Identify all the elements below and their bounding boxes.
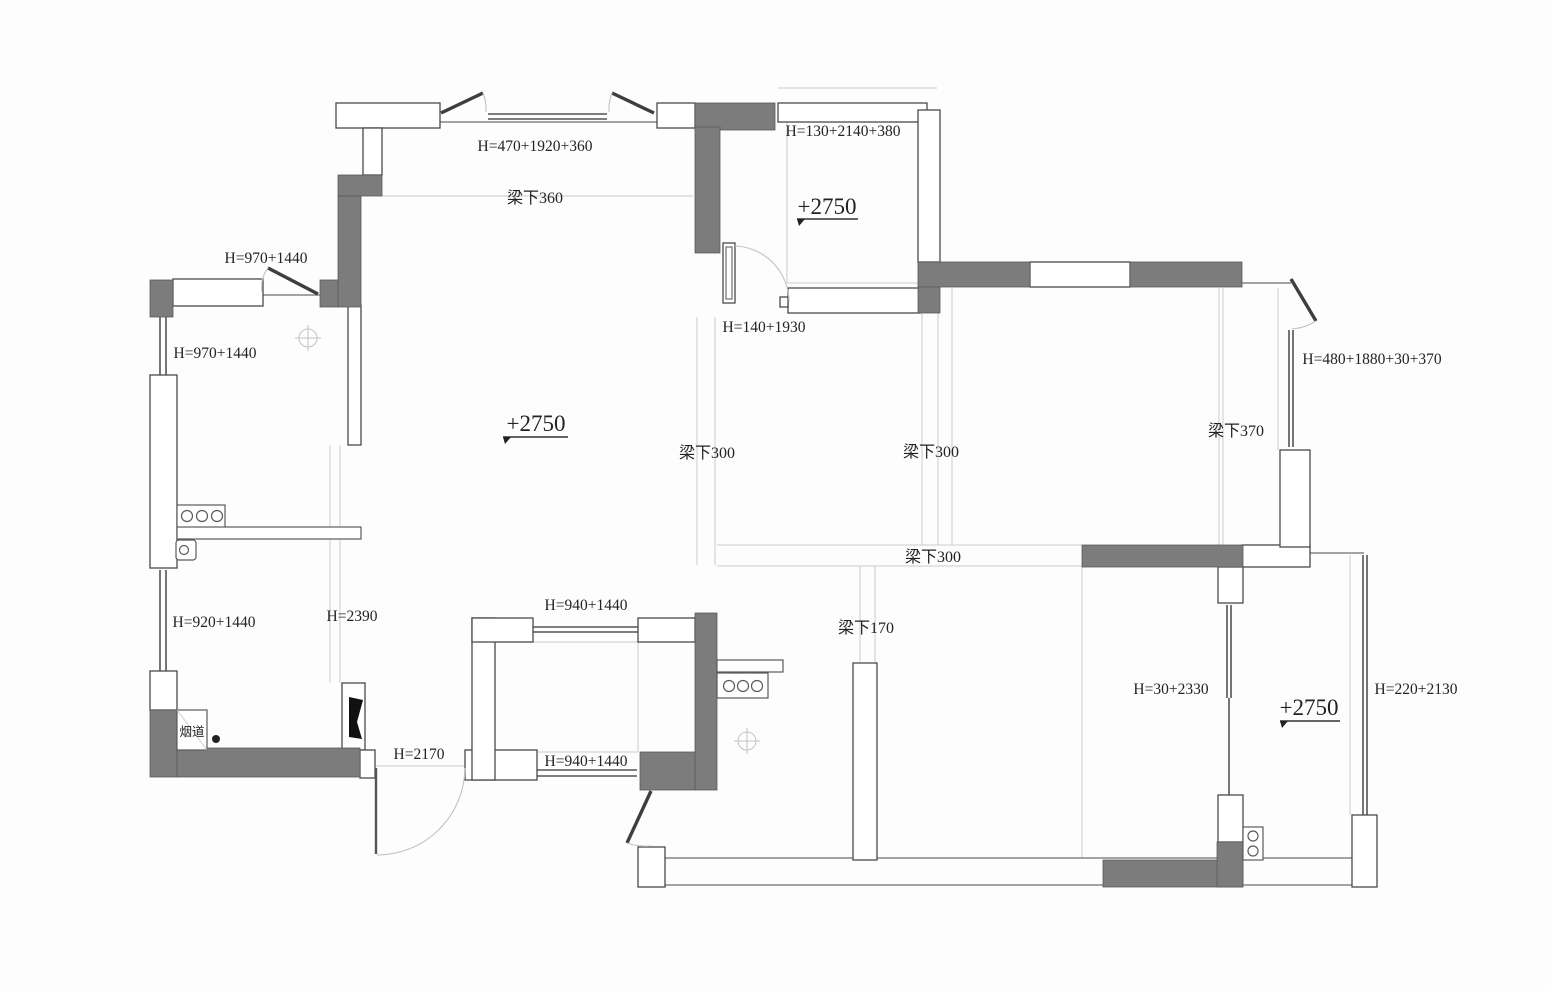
label-level-living: +2750 [507, 411, 566, 436]
annotation-labels: H=470+1920+360 梁下360 H=130+2140+380 +275… [173, 123, 1458, 770]
living-casement-right [609, 93, 654, 113]
floor-plan-page: H=470+1920+360 梁下360 H=130+2140+380 +275… [0, 0, 1551, 991]
entry-door [376, 768, 465, 855]
label-beam-300-left: 梁下300 [679, 444, 735, 462]
label-level-br2: +2750 [1280, 695, 1339, 720]
wall-lines [263, 122, 1377, 885]
label-window-br2-left: H=30+2330 [1133, 681, 1208, 698]
label-window-top-living: H=470+1920+360 [478, 138, 593, 155]
water-heater [1243, 827, 1263, 860]
fixtures [176, 325, 1263, 860]
datum-crosshair-room [734, 728, 760, 754]
label-beam-300-right: 梁下300 [903, 443, 959, 461]
label-beam-370: 梁下370 [1208, 422, 1264, 440]
doors-and-casements [262, 93, 1316, 855]
bedroom-door [723, 243, 789, 303]
label-sill-entry: H=140+1930 [723, 319, 806, 336]
second-cooktop [717, 660, 783, 698]
kitchen-casement-window [262, 268, 318, 294]
label-window-master-right: H=480+1880+30+370 [1302, 351, 1441, 368]
living-casement-left [441, 93, 486, 113]
floor-plan-canvas: H=470+1920+360 梁下360 H=130+2140+380 +275… [0, 0, 1551, 991]
balcony-door [627, 791, 651, 846]
kitchen-cooktop [177, 505, 225, 528]
label-window-store-bottom: H=940+1440 [545, 753, 628, 770]
label-flue: 烟道 [179, 725, 205, 739]
datum-crosshair-kitchen [295, 325, 321, 351]
label-level-bed1: +2750 [798, 194, 857, 219]
label-window-bed1-top: H=130+2140+380 [786, 123, 901, 140]
label-beam-360: 梁下360 [507, 189, 563, 207]
kitchen-sink [176, 540, 196, 560]
label-window-utility-left: H=920+1440 [173, 614, 256, 631]
label-opening-2390: H=2390 [327, 608, 378, 625]
label-window-kitchen-left: H=970+1440 [174, 345, 257, 362]
kitchen-divider-wall [177, 527, 361, 539]
label-beam-170: 梁下170 [838, 619, 894, 637]
label-window-store-top: H=940+1440 [545, 597, 628, 614]
label-window-br2-right: H=220+2130 [1375, 681, 1458, 698]
label-window-kitchen-top: H=970+1440 [225, 250, 308, 267]
label-beam-300-lower: 梁下300 [905, 548, 961, 566]
floor-drain-dot [212, 735, 220, 743]
master-door [1291, 279, 1316, 329]
label-door-2170: H=2170 [394, 746, 445, 763]
